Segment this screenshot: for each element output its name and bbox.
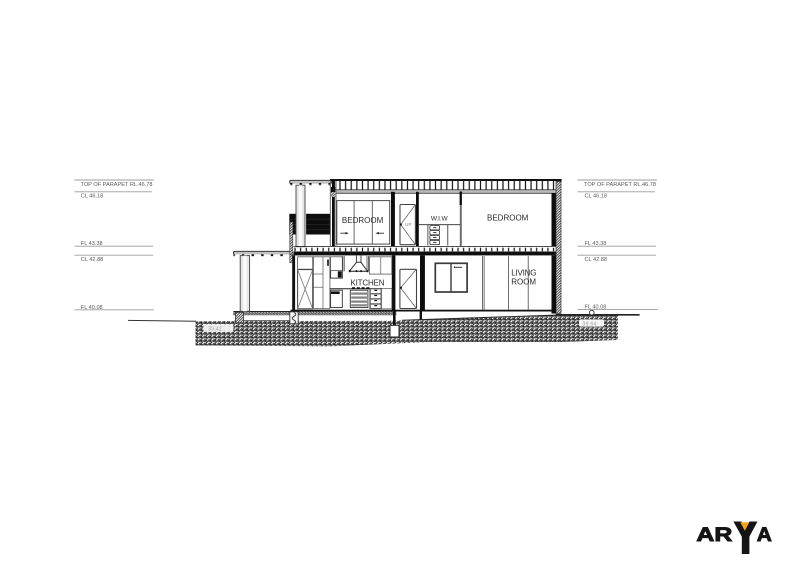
- svg-text:BEDROOM: BEDROOM: [342, 216, 384, 225]
- svg-text:W.I.W: W.I.W: [431, 216, 449, 223]
- svg-text:AR: AR: [696, 524, 732, 545]
- svg-text:39.42: 39.42: [208, 327, 222, 333]
- svg-text:A: A: [757, 525, 772, 546]
- svg-text:KITCHEN: KITCHEN: [351, 279, 385, 288]
- svg-text:TOP OF PARAPET RL.46.78: TOP OF PARAPET RL.46.78: [81, 182, 153, 188]
- svg-text:LIVING: LIVING: [511, 268, 536, 277]
- svg-text:CL 46.18: CL 46.18: [585, 194, 608, 200]
- svg-text:UP: UP: [405, 222, 411, 227]
- svg-text:CL 46.18: CL 46.18: [81, 194, 104, 200]
- svg-text:CL 42.88: CL 42.88: [81, 257, 104, 263]
- svg-text:BEDROOM: BEDROOM: [487, 213, 529, 222]
- svg-text:39.64: 39.64: [583, 321, 597, 327]
- svg-text:CL 42.88: CL 42.88: [585, 257, 608, 263]
- svg-text:TOP OF PARAPET RL.46.78: TOP OF PARAPET RL.46.78: [584, 182, 656, 188]
- svg-text:ROOM: ROOM: [511, 278, 536, 287]
